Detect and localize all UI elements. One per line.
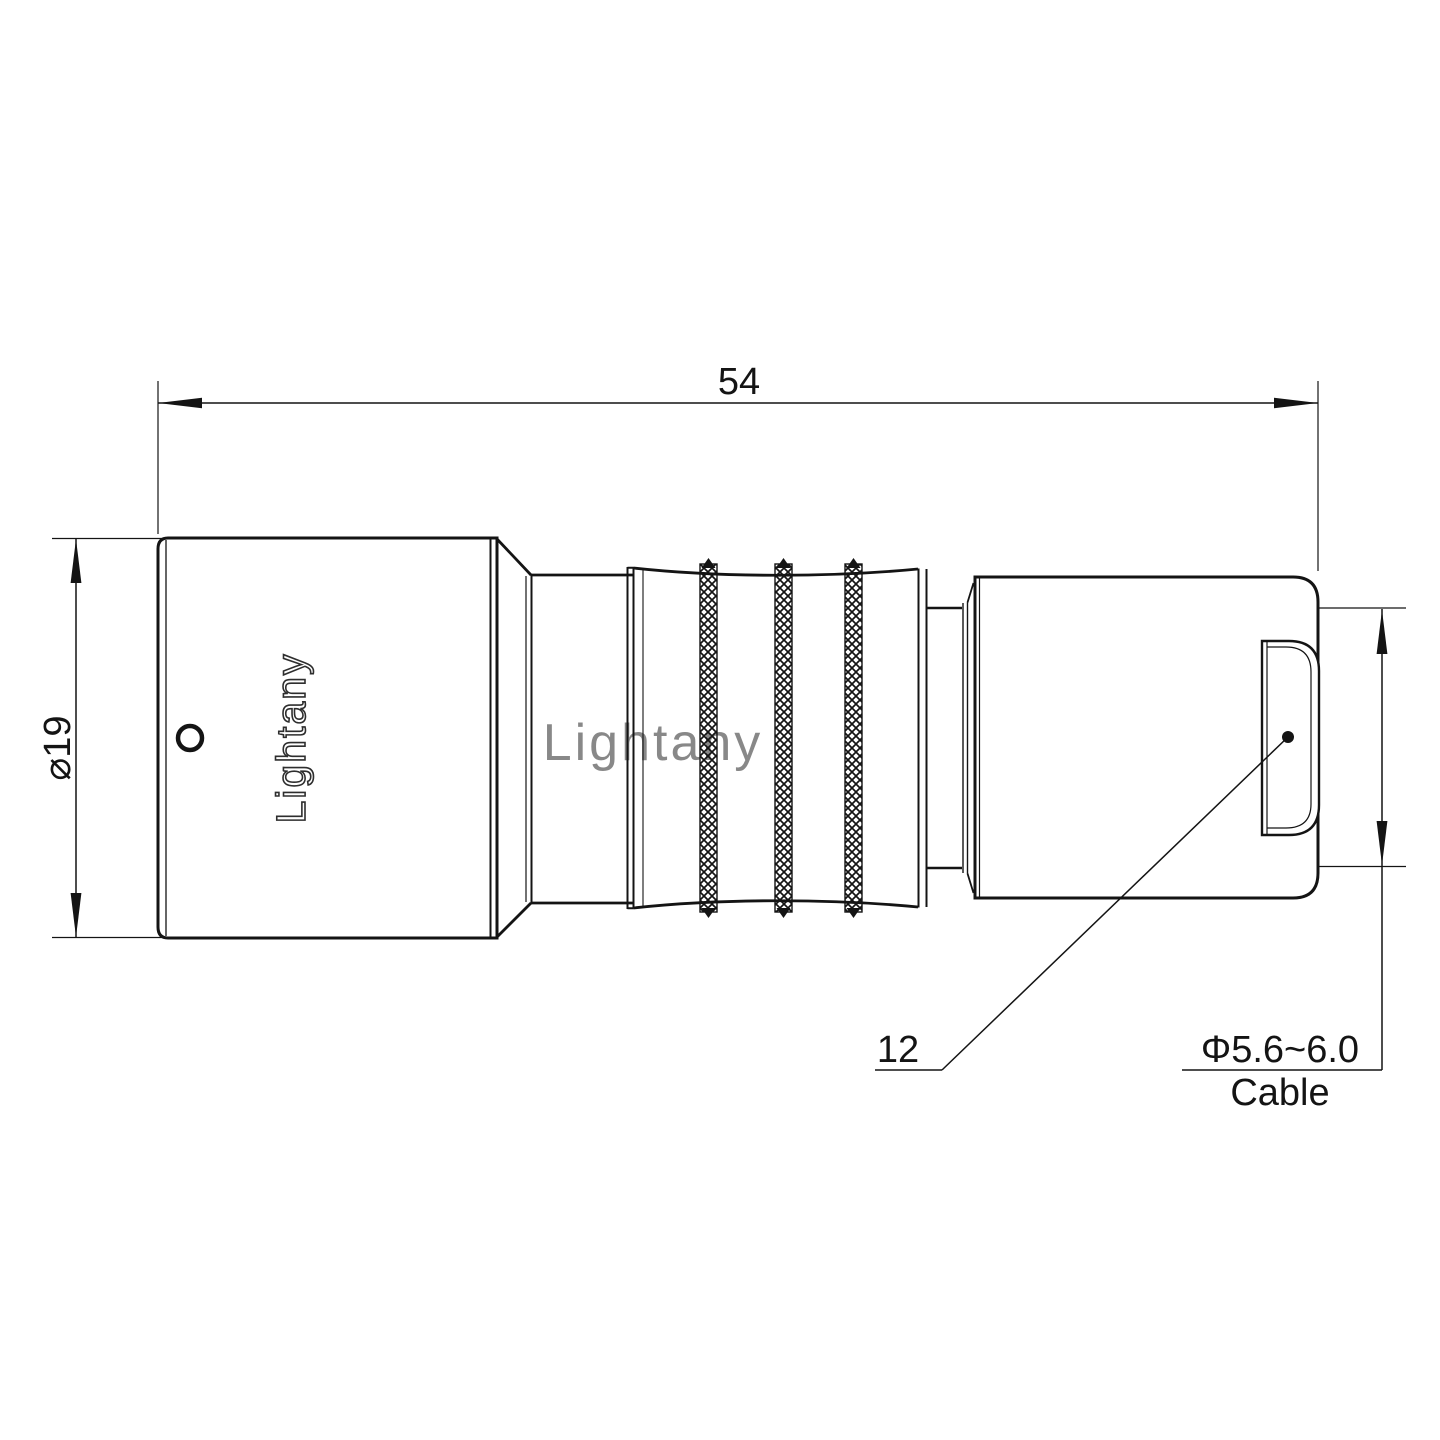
knurl-tip-top: [777, 558, 791, 568]
dim19-arrow-top: [71, 539, 82, 583]
knurl-tip-top: [847, 558, 861, 568]
dimR-arrow-top: [1377, 610, 1388, 654]
knurl-tip-bottom: [702, 908, 716, 918]
technical-drawing-page: Lightany: [0, 0, 1440, 1440]
dim19-text: ⌀19: [37, 715, 79, 780]
cable-boot: [1262, 641, 1319, 835]
knurl-band: [700, 558, 717, 918]
dim54-arrow-right: [1274, 398, 1318, 409]
knurl-band: [775, 558, 792, 918]
dimension-front-diameter: ⌀19: [37, 539, 164, 938]
knurl-band: [845, 558, 862, 918]
connector-technical-drawing: Lightany: [0, 0, 1440, 1440]
cable-size-text: Φ5.6~6.0: [1201, 1029, 1359, 1071]
dim19-arrow-bottom: [71, 893, 82, 937]
groove-fill: [927, 608, 976, 868]
dimR-extension-lines: [1319, 608, 1406, 867]
engraved-logo-text: Lightany: [268, 652, 314, 823]
label12-text: 12: [877, 1029, 919, 1071]
front-shell-fill: [158, 538, 497, 938]
watermark-text: Lightany: [543, 714, 764, 772]
dim54-arrow-left: [158, 398, 202, 409]
knurl-tip-top: [702, 558, 716, 568]
dim54-text: 54: [718, 361, 760, 403]
cable-word-text: Cable: [1230, 1072, 1329, 1114]
knurl-tip-bottom: [847, 908, 861, 918]
dimR-arrow-bottom: [1377, 821, 1388, 865]
knurl-tip-bottom: [777, 908, 791, 918]
